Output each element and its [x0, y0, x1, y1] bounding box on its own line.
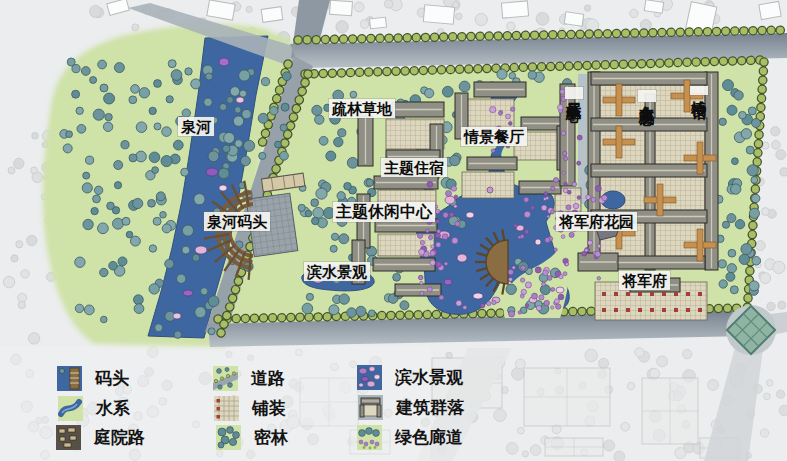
label-theme-lodging: 主题住宿	[381, 158, 447, 177]
legend-row-dock: 码头	[57, 366, 129, 391]
legend-swatch-water-system-icon	[58, 396, 83, 421]
legend-row-dense-forest: 密林	[216, 425, 288, 450]
legend-label-dock: 码头	[95, 367, 129, 390]
legend-row-paving: 铺装	[214, 396, 286, 421]
legend-row-waterfront-landscape: 滨水景观	[357, 365, 463, 390]
label-general-mansion-garden: 将军府花园	[556, 212, 637, 231]
legend-row-water-system: 水系	[58, 396, 130, 421]
legend-label-dense-forest: 密林	[254, 426, 288, 449]
legend-label-water-system: 水系	[96, 397, 130, 420]
legend-label-green-corridor: 绿色廊道	[395, 426, 463, 449]
label-scene-restaurant: 情景餐厅	[461, 127, 527, 146]
legend-label-paving: 铺装	[252, 397, 286, 420]
label-general-mansion: 将军府	[619, 271, 670, 290]
legend-label-waterfront-landscape: 滨水景观	[395, 366, 463, 389]
legend-label-road: 道路	[251, 367, 285, 390]
label-cultural-exchange-center: 文化交流中心	[638, 90, 656, 102]
label-theme-leisure-center: 主题休闲中心	[333, 202, 435, 222]
legend-fade-right	[430, 346, 787, 461]
label-waterfront-landscape: 滨水景观	[304, 262, 370, 281]
legend-label-building-cluster: 建筑群落	[396, 396, 464, 419]
legend-swatch-building-cluster-icon	[358, 395, 383, 420]
legend-swatch-green-corridor-icon	[357, 425, 382, 450]
master-plan-map	[0, 0, 787, 461]
legend-swatch-waterfront-landscape-icon	[357, 365, 382, 390]
legend-swatch-courtyard-road-icon	[56, 425, 81, 450]
legend-row-road: 道路	[213, 366, 285, 391]
legend-row-building-cluster: 建筑群落	[358, 395, 464, 420]
diamond-plaza	[726, 305, 776, 355]
label-exhibition-experience-center: 展示体验中心	[565, 87, 583, 99]
label-quanhe-river: 泉河	[178, 117, 214, 136]
legend-swatch-road-icon	[213, 366, 238, 391]
legend-swatch-dock-icon	[57, 366, 82, 391]
legend-row-courtyard-road: 庭院路	[56, 425, 145, 450]
legend-row-green-corridor: 绿色廊道	[357, 425, 463, 450]
label-sparse-woodland-meadow: 疏林草地	[329, 99, 395, 118]
master-plan-page: 泉河 泉河码头 疏林草地 情景餐厅 主题住宿 主题休闲中心 滨水景观 展示体验中…	[0, 0, 787, 461]
legend-label-courtyard-road: 庭院路	[94, 426, 145, 449]
label-quanhe-wharf: 泉河码头	[204, 212, 270, 231]
legend-swatch-dense-forest-icon	[216, 425, 241, 450]
legend-swatch-paving-icon	[214, 396, 239, 421]
label-museum: 博物馆	[690, 86, 708, 95]
